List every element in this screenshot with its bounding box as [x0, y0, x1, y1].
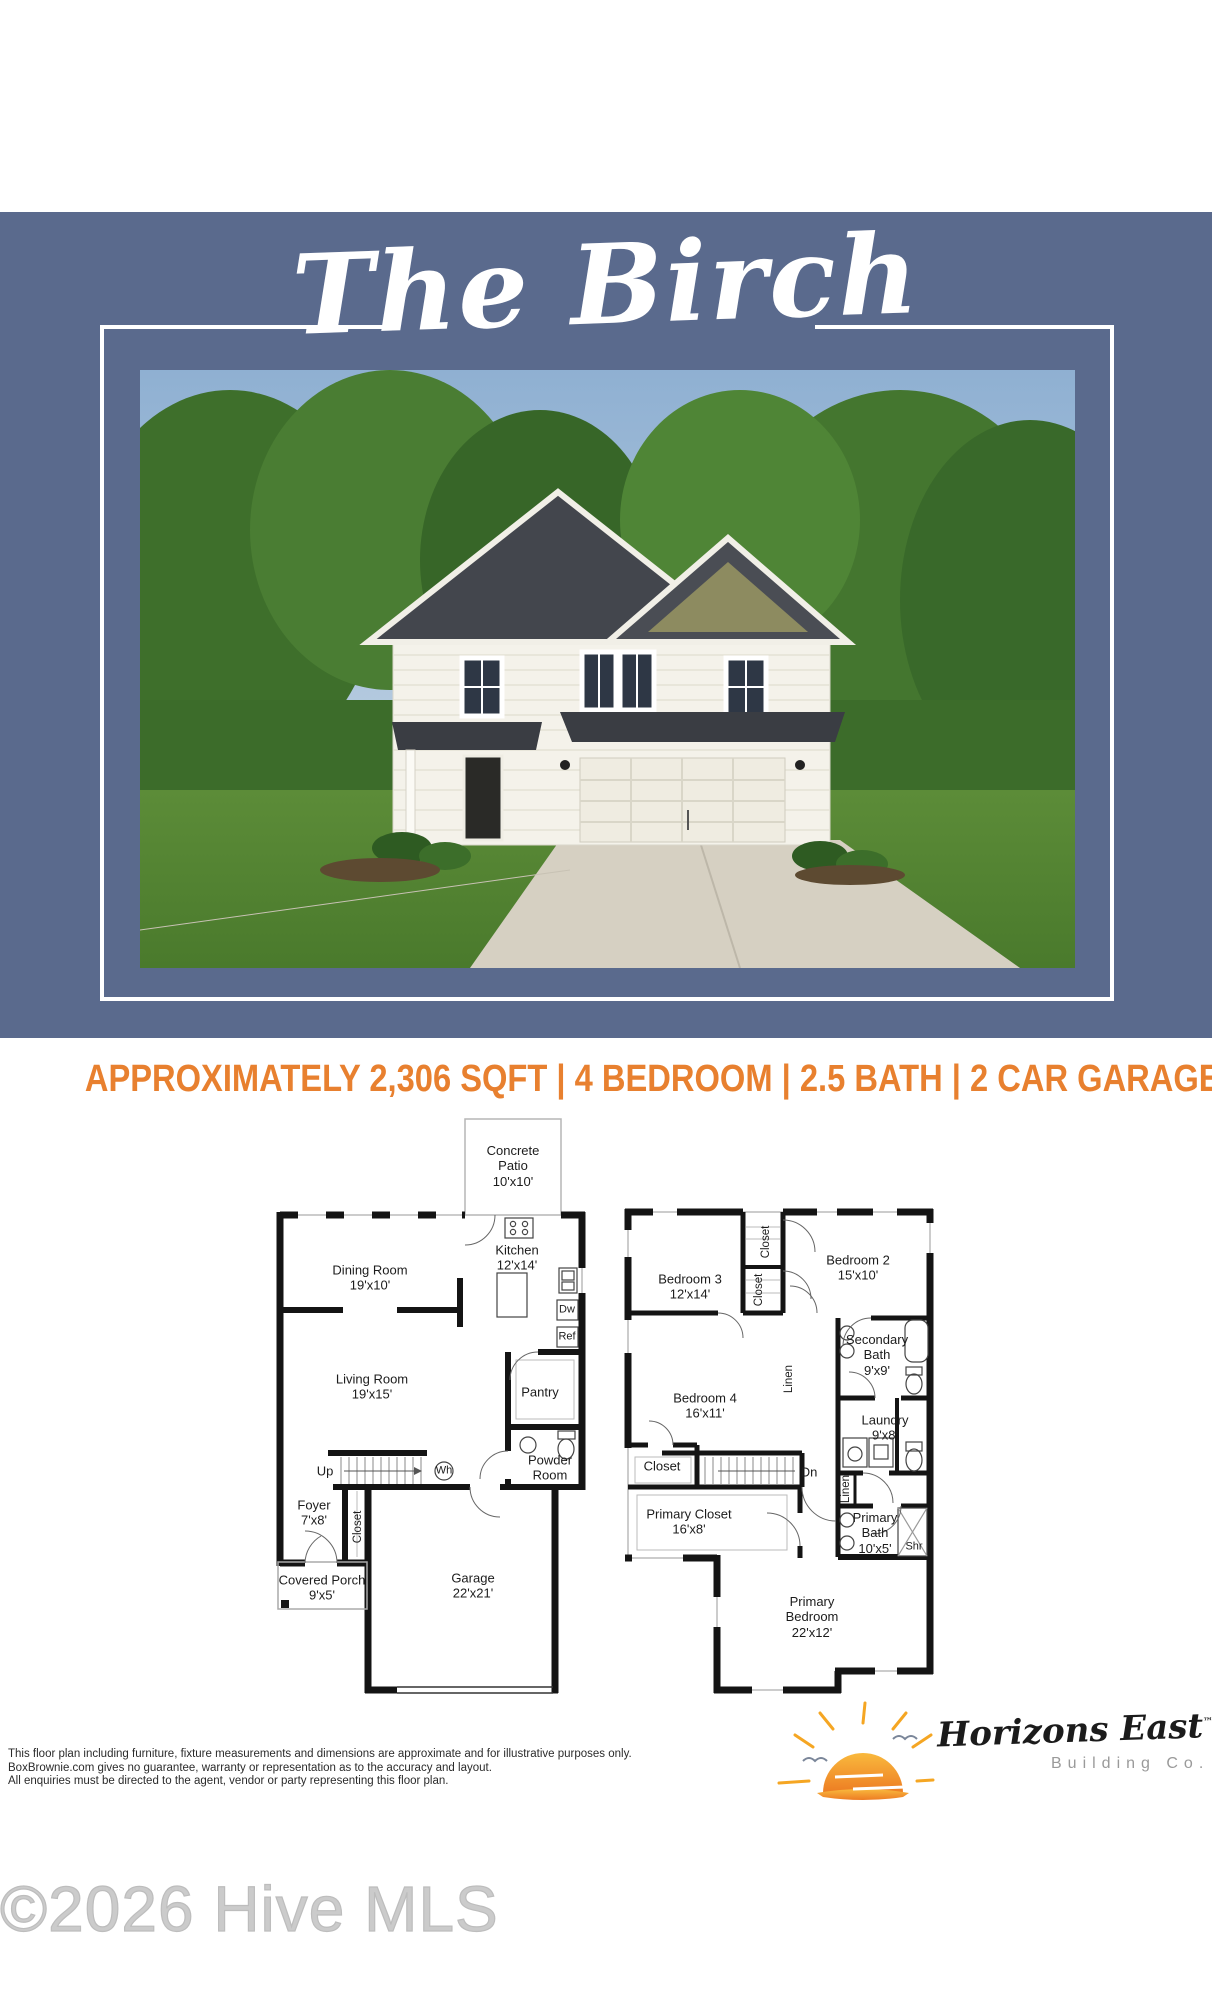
room-label-linen-lower: Linen [840, 1475, 854, 1503]
room-label-concrete-patio: Concrete Patio10'x10' [487, 1143, 540, 1189]
room-label-powder-room: Powder Room [528, 1453, 572, 1484]
trademark-symbol: ™ [1203, 1717, 1212, 1728]
room-label-foyer: Foyer7'x8' [297, 1498, 330, 1529]
front-door [464, 756, 502, 840]
label-shower: Shr [905, 1541, 922, 1554]
room-label-bedroom-2: Bedroom 215'x10' [826, 1253, 890, 1284]
room-label-living-room: Living Room19'x15' [336, 1372, 408, 1403]
logo-company-name: Horizons East™ [936, 1706, 1197, 1755]
room-label-bedroom-3: Bedroom 312'x14' [658, 1272, 722, 1303]
flyer-page: The Birch [0, 0, 1212, 2000]
porch-lamp [560, 760, 570, 770]
label-dishwasher: Dw [559, 1304, 575, 1317]
label-refrigerator: Ref [558, 1331, 575, 1344]
room-label-pantry: Pantry [521, 1384, 559, 1399]
disclaimer-line-1: This floor plan including furniture, fix… [8, 1748, 632, 1762]
porch-roof [392, 722, 542, 750]
room-label-closet: Closet [352, 1511, 366, 1544]
room-label-dining-room: Dining Room19'x10' [332, 1263, 407, 1294]
room-label-laundry: Laundry9'x8' [862, 1413, 909, 1444]
room-label-primary-closet: Primary Closet16'x8' [646, 1507, 731, 1538]
room-label-kitchen: Kitchen12'x14' [495, 1243, 538, 1274]
garage-awning-roof [560, 712, 845, 742]
disclaimer-line-3: All enquiries must be directed to the ag… [8, 1775, 632, 1789]
room-label-secondary-bath: Secondary Bath9'x9' [846, 1332, 908, 1378]
disclaimer-text: This floor plan including furniture, fix… [8, 1748, 632, 1789]
room-label-bedroom-4: Bedroom 416'x11' [673, 1391, 737, 1422]
house-photo [140, 370, 1075, 968]
room-label-closet-upper: Closet [760, 1226, 774, 1259]
porch-post [406, 750, 415, 842]
label-stairs-down: Dn [801, 1464, 818, 1479]
label-stairs-up: Up [317, 1463, 334, 1478]
room-label-closet-stairs: Closet [644, 1458, 681, 1473]
mls-watermark: ©2026 Hive MLS [0, 1872, 499, 1946]
floorplan-first-walls [226, 1116, 592, 1696]
room-label-covered-porch: Covered Porch9'x5' [279, 1573, 366, 1604]
sunrise-icon [765, 1693, 935, 1813]
room-label-garage: Garage22'x21' [451, 1571, 494, 1602]
room-label-linen-upper: Linen [783, 1365, 797, 1393]
label-water-heater: Wh [436, 1465, 453, 1478]
room-label-primary-bath: Primary Bath10'x5' [853, 1510, 898, 1556]
hero-section: The Birch [0, 212, 1212, 1038]
room-label-primary-bedroom: Primary Bedroom22'x12' [786, 1594, 839, 1640]
logo-tagline: Building Co. [1051, 1755, 1209, 1773]
room-label-closet-lower: Closet [753, 1274, 767, 1307]
house-rendering [140, 370, 1075, 968]
floorplan-first-floor: Concrete Patio10'x10' Dining Room19'x10'… [226, 1116, 592, 1696]
spec-line: APPROXIMATELY 2,306 SQFT | 4 BEDROOM | 2… [85, 1058, 1127, 1101]
garage-lamp [795, 760, 805, 770]
floorplan-second-floor: Bedroom 312'x14' Closet Closet Bedroom 2… [623, 1205, 935, 1695]
builder-logo: Horizons East™ Building Co. [765, 1693, 1205, 1813]
disclaimer-line-2: BoxBrownie.com gives no guarantee, warra… [8, 1762, 632, 1776]
